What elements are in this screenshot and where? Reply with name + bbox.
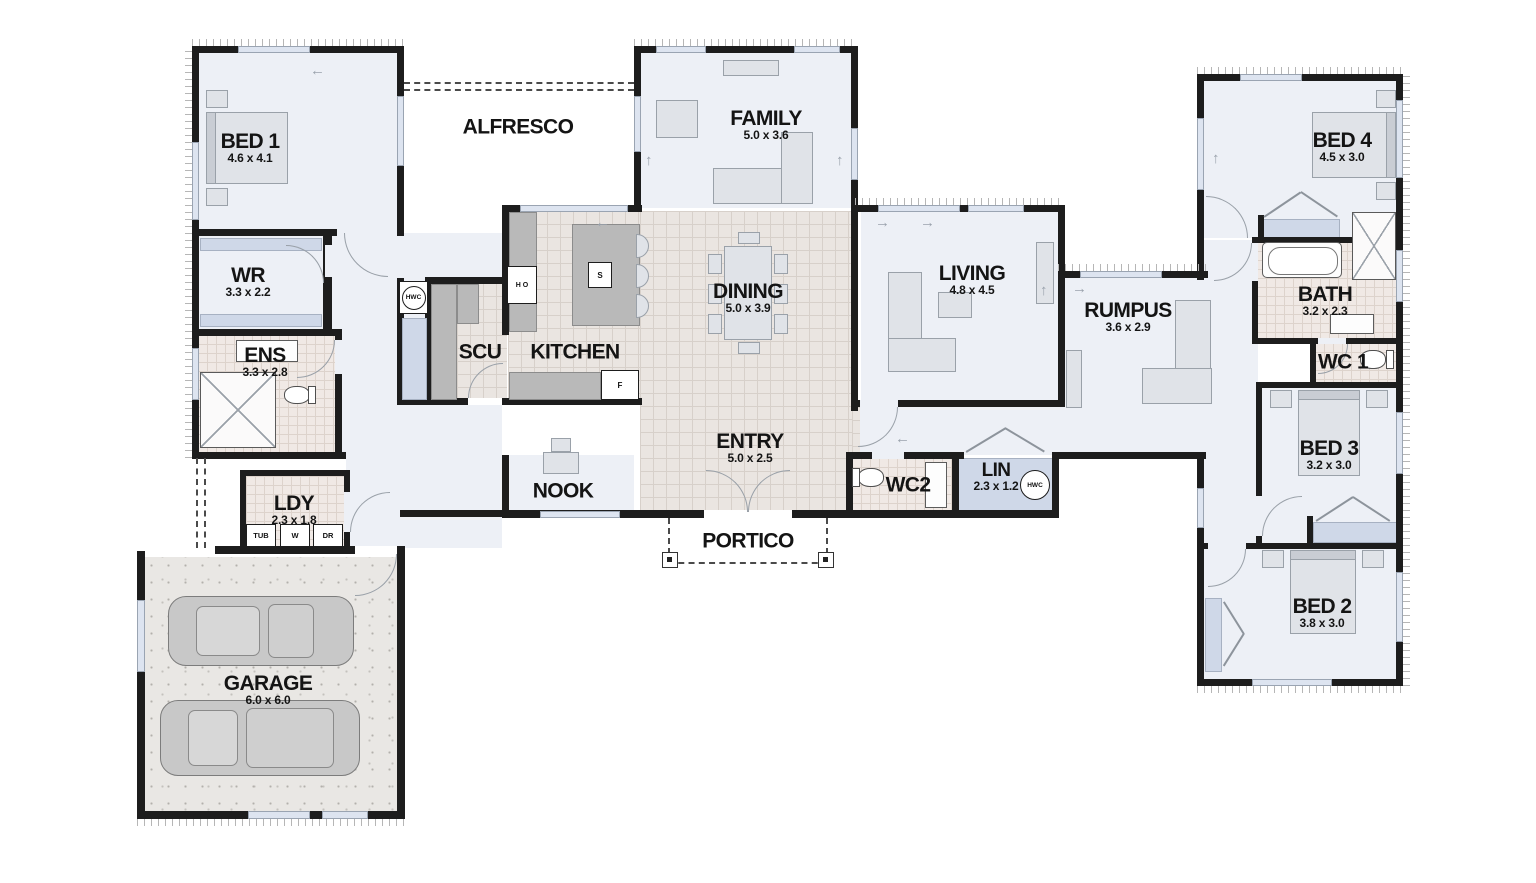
door-opening [468,398,502,405]
hwc-cylinder: HWC [1020,470,1050,500]
direction-arrow: ↑ [1212,150,1220,167]
dining-chair [774,254,788,274]
direction-arrow: ← [595,214,610,231]
door-opening [355,546,397,554]
bedside-table [206,90,228,108]
room-label-dining: DINING5.0 x 3.9 [713,281,783,315]
room-label-ldy: LDY2.3 x 1.8 [272,493,317,527]
cladding [137,819,405,826]
room-label-bed2: BED 23.8 x 3.0 [1293,596,1352,630]
window [1396,100,1403,178]
nook-appliance [551,438,571,452]
room-label-bed1: BED 14.6 x 4.1 [221,131,280,165]
wall-segment [1058,205,1065,407]
room-label-bath: BATH3.2 x 2.3 [1298,284,1352,318]
wardrobe-shelf [200,314,322,327]
room-label-portico: PORTICO [702,530,793,551]
room-label-bed3: BED 33.2 x 3.0 [1300,438,1359,472]
window [634,96,641,152]
bedside-table [206,188,228,206]
room-label-kitchen: KITCHEN [530,341,619,362]
window [1396,572,1403,642]
direction-arrow: ↑ [836,152,844,169]
ens-toilet-tank [308,386,316,404]
scullery-bench [457,284,479,324]
dining-chair [738,342,760,354]
alfresco-roof-dashed-line [404,82,634,84]
wall-segment [397,551,405,819]
cladding [1197,67,1403,74]
ens-shower [200,372,276,448]
room-label-bed4: BED 44.5 x 3.0 [1313,130,1372,164]
dining-chair [708,314,722,334]
window [397,96,404,166]
bedside-table [1270,390,1292,408]
window [1396,412,1403,474]
portico-post [662,552,678,568]
car-windshield [268,604,314,658]
window [322,811,368,819]
laundry-tub: TUB [246,524,276,547]
wall-segment [425,277,509,284]
porch-dashed-line [204,458,206,548]
wall-segment [952,452,959,518]
washing-machine: W [280,524,310,547]
window [238,46,310,53]
bed1-headboard [206,112,216,184]
window [878,205,960,212]
wall-segment [192,452,346,459]
nook-table [543,452,579,474]
room-label-scu: SCU [459,341,502,362]
wall-segment [400,510,508,517]
room-label-alfresco: ALFRESCO [463,116,574,137]
bed4-headboard [1386,112,1396,178]
bed3-headboard [1298,390,1360,400]
direction-arrow: → [1072,280,1087,297]
armchair [656,100,698,138]
bedside-table [1362,550,1384,568]
wall-segment [1056,452,1156,459]
bed4-robe [1263,219,1340,238]
hall-mid-floor [860,405,1202,455]
direction-arrow: → [875,214,890,231]
room-label-garage: GARAGE6.0 x 6.0 [224,673,313,707]
window [851,128,858,180]
bedside-table [1262,550,1284,568]
cabinet [1066,350,1082,408]
fridge: F [601,370,639,400]
kitchen-sink: S [588,262,612,288]
wall-segment [851,46,858,411]
dining-chair [774,314,788,334]
room-label-wr: WR3.3 x 2.2 [226,265,271,299]
wall-segment [192,329,342,336]
dining-chair [708,254,722,274]
window [1080,271,1162,278]
window [192,348,199,400]
car-cabin [188,710,238,766]
family-sofa [781,132,813,204]
scullery-bench [431,284,457,400]
direction-arrow: ← [310,62,325,79]
stacker-door [520,205,628,212]
wc2-toilet-tank [852,468,860,487]
window [1252,679,1332,686]
cladding [192,39,404,46]
room-label-wc1: WC 1 [1318,351,1368,372]
bathtub-inner [1268,247,1338,275]
hwc-cylinder: HWC [402,286,426,310]
window [1197,488,1204,528]
window [137,600,145,672]
direction-arrow: ← [895,430,910,447]
window [248,811,310,819]
cladding [1197,686,1403,693]
bath-shower [1352,212,1396,280]
wall-segment [192,229,337,236]
direction-arrow: ↑ [1040,282,1048,299]
living-sofa [888,338,956,372]
window [794,46,840,53]
room-label-wc2: WC2 [886,474,931,495]
dining-chair [738,232,760,244]
cladding [185,46,192,458]
cladding [855,198,1065,205]
rumpus-sofa [1142,368,1212,404]
hwc-box: HWC [399,281,428,314]
wall-segment [1307,516,1313,543]
window [192,142,199,220]
bed3-robe [1313,522,1397,543]
window [1240,74,1302,81]
door-opening [1256,496,1262,536]
wc2-toilet [858,468,884,487]
wall-segment [846,452,964,459]
cladding [634,39,858,46]
window [1396,250,1403,302]
room-label-ens: ENS3.3 x 2.8 [243,345,288,379]
room-label-entry: ENTRY5.0 x 2.5 [716,431,783,465]
car-cabin [196,606,260,656]
room-label-nook: NOOK [533,480,594,501]
door-opening [1252,243,1258,281]
alfresco-roof-dashed-line [404,89,634,91]
wall-segment [1310,338,1316,388]
ens-toilet [284,386,310,404]
window [540,511,620,518]
window [656,46,706,53]
tv-unit [723,60,779,76]
room-label-family: FAMILY5.0 x 3.6 [730,108,801,142]
bedside-table [1366,390,1388,408]
door-opening [335,340,342,374]
bed2-headboard [1290,550,1356,560]
direction-arrow: → [920,214,935,231]
wc1-toilet-tank [1386,350,1394,369]
bedside-table [1376,90,1396,108]
wall-segment [243,470,347,476]
bedside-table [1376,182,1396,200]
kitchen-bench [509,372,601,400]
wall-segment [1256,382,1403,388]
cladding [1058,264,1208,271]
portico-post [818,552,834,568]
door-opening [344,492,350,532]
wall-segment [502,455,509,517]
direction-arrow: ↑ [645,152,653,169]
door-opening [325,245,332,277]
cladding [1403,74,1410,686]
door-opening [872,452,904,459]
room-label-living: LIVING4.8 x 4.5 [939,263,1005,297]
room-label-rumpus: RUMPUS3.6 x 2.9 [1084,300,1171,334]
car-body-panel [246,708,334,768]
door-opening [860,400,898,407]
room-label-lin: LIN2.3 x 1.2 [974,461,1019,493]
floor-plan: HWC TUB W DR H O S F HWC [0,0,1536,883]
porch-dashed-line [196,458,198,548]
wall-segment [846,510,1059,518]
wall-segment [1052,452,1059,518]
hall-cupboard [402,318,427,400]
window [1197,118,1204,190]
wall-segment [137,551,145,819]
dryer: DR [313,524,343,547]
hob-oven: H O [507,266,537,304]
bed2-robe [1205,598,1222,672]
window [968,205,1024,212]
